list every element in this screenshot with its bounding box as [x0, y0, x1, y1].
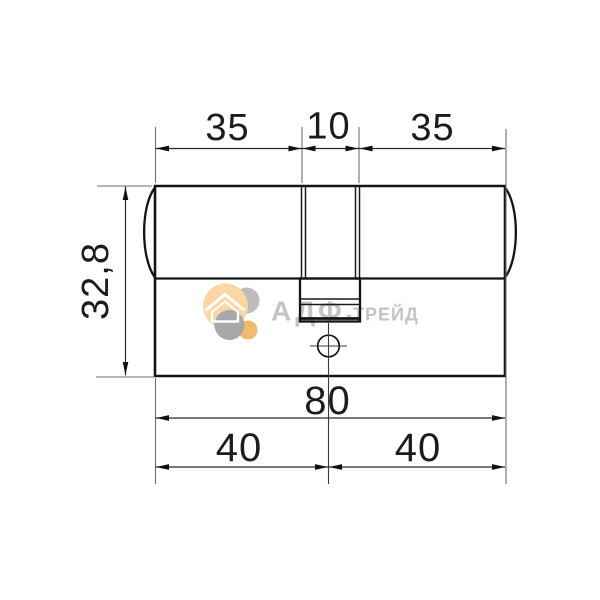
dim-label-top-center: 10: [306, 106, 350, 148]
arrowhead: [156, 415, 169, 421]
arrowhead: [492, 415, 505, 421]
technical-drawing-canvas: АДФ -ТРЕЙД: [0, 0, 600, 600]
dim-label-height: 32,8: [75, 242, 117, 320]
cylinder-drawing: АДФ -ТРЕЙД: [0, 0, 600, 600]
arrowhead: [123, 187, 129, 200]
arrowhead: [156, 146, 169, 152]
arrowhead: [329, 464, 342, 470]
cylinder-body-outline: [144, 185, 516, 377]
arrowhead: [360, 146, 373, 152]
arrowhead: [289, 146, 302, 152]
dim-label-top-left: 35: [205, 107, 249, 149]
dim-label-bottom-left: 40: [216, 426, 263, 470]
arrowhead: [492, 146, 505, 152]
arrowhead: [156, 464, 169, 470]
dim-label-bottom-right: 40: [395, 426, 442, 470]
dim-label-total: 80: [304, 379, 351, 423]
dim-label-top-right: 35: [410, 107, 454, 149]
barrel-right-cap: [505, 188, 516, 278]
arrowhead: [492, 464, 505, 470]
barrel-left-cap: [144, 188, 155, 278]
arrowhead: [123, 362, 129, 375]
watermark-logo: [203, 284, 260, 341]
logo-circle-gray: [215, 310, 245, 340]
arrowhead: [315, 464, 328, 470]
